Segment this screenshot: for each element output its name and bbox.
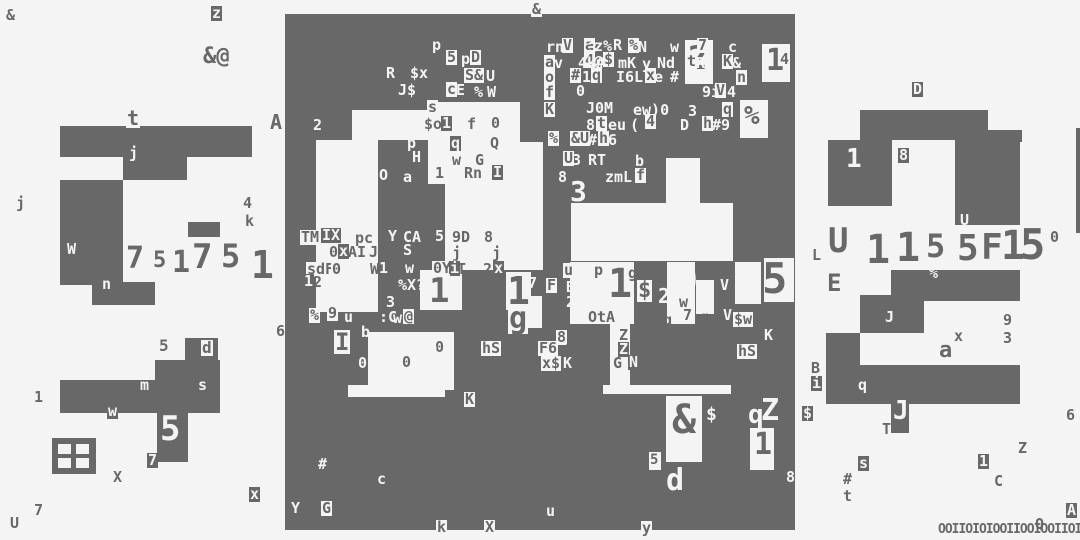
glyph: g [508,304,528,334]
glyph: C [994,474,1003,489]
glyph: 4 [727,85,736,100]
glyph: $ [706,406,717,424]
glyph: & [473,68,484,83]
glyph: a [532,154,541,169]
glyph: 1 [978,454,989,469]
glyph: T [882,422,891,437]
glyph: 1 [896,228,920,268]
glyph: 5 [925,230,946,262]
glyph: Lg [654,313,672,328]
glyph: 6 [608,133,617,148]
glyph: 8 [898,148,909,163]
glyph: s [198,378,207,393]
glyph: W [487,85,496,100]
glyph: o [891,346,900,361]
glyph: j [16,196,25,211]
glyph: V [722,308,733,323]
glyph: I [492,165,503,180]
glyph: 7 [683,308,692,323]
glyph: S [402,243,413,258]
glyph: 8 [786,470,795,485]
glyph: 9 [1003,313,1012,328]
glyph: @ [403,309,414,324]
glyph: q [450,136,461,151]
glyph: hS [481,341,501,356]
glyph: N [628,355,639,370]
glyph: 2 [378,356,387,371]
glyph: k [366,279,375,294]
glyph: q [700,310,709,325]
glyph: % [309,308,320,323]
glyph: z [211,6,222,21]
glyph: % [426,355,435,370]
light-block [58,458,71,468]
glyph: K [764,328,773,343]
glyph: e [60,441,69,456]
light-block [603,385,731,394]
glyph: w [452,153,461,168]
glyph: V [720,278,729,293]
glyph: D [680,118,689,133]
glyph: X [484,520,495,535]
glyph: Y [291,501,300,516]
glyph: 5 [158,338,170,354]
glyph: 0 [1050,230,1059,245]
glyph: 7 [34,503,43,518]
glyph: Z [761,396,779,426]
glyph: y [641,521,652,536]
glyph: x [493,261,504,276]
glyph: 5 [152,250,167,272]
glyph: d [666,466,684,496]
glyph: k [436,520,447,535]
glyph: 1 [96,244,118,280]
glyph: w [404,261,415,276]
glyph: 5 [650,453,658,467]
glyph: D [912,82,923,97]
glyph: 5 [1020,224,1045,266]
glyph: 1 [608,264,632,304]
glyph: 2 [313,118,322,133]
glyph: x$ [541,356,561,371]
glyph: 4 [780,52,789,67]
glyph: G [613,356,622,371]
glyph: %X? [398,278,425,293]
glyph: 0 [401,355,412,370]
glyph: #9 [712,118,730,133]
dark-block [826,365,1020,404]
glyph: 6 [1066,408,1075,423]
glyph: v [554,56,563,71]
glyph: F8 [572,356,590,371]
glyph: 1 [846,146,862,172]
glyph: 0 [329,245,338,260]
glyph: c [377,472,386,487]
glyph: F [981,230,1003,266]
glyph: # [843,472,852,487]
glyph: j [129,146,138,161]
glyph: & [6,8,15,23]
glyph: 1 [435,166,444,181]
glyph: J4 [369,245,387,260]
glyph: e [654,70,663,85]
glyph: $ [802,406,813,421]
glyph: IX [321,228,341,243]
glyph: b [361,325,370,340]
glyph: L [812,248,821,263]
glyph: $ [637,280,652,302]
glyph: q [858,378,867,393]
glyph: U [828,224,848,258]
glyph: 4 [243,196,252,211]
glyph: 1 [34,390,43,405]
glyph: t [843,489,852,504]
glyph: 7 [147,453,158,468]
glyph: x [249,487,260,502]
glyph: 4 [645,114,656,129]
glyph: % [744,103,760,129]
glyph: 9 [408,373,417,388]
glyph: q [591,68,602,83]
glyph: U [486,69,495,84]
glyph: 3 [688,104,697,119]
glyph: Q [490,136,499,151]
glyph: 6 [276,324,285,339]
glyph: T [457,262,466,277]
glyph: x [954,329,963,344]
glyph: G [321,501,332,516]
glyph: f [466,117,477,132]
glyph: w [393,311,402,326]
glyph: 3 [572,153,581,168]
glyph: E [456,83,465,98]
glyph: 0 [358,356,367,371]
glyph: u [546,504,555,519]
glyph: s [858,456,869,471]
glyph: a [403,170,412,185]
glyph: Rn [464,166,482,181]
glyph: 2 [483,262,492,277]
glyph: q [722,102,733,117]
glyph: X [113,470,122,485]
glyph: 3 [1003,331,1012,346]
glyph: k [245,214,254,229]
light-block [666,158,700,206]
glyph: 7 [697,38,708,53]
glyph: 5 [957,231,979,267]
glyph: N [638,40,647,55]
glyph: 5 [435,229,444,244]
glyph: 2 [293,275,302,290]
glyph: p [461,52,470,67]
light-block [348,385,445,397]
glyph: A [1066,503,1077,518]
glyph: s [427,100,438,115]
glyph: & [531,2,542,17]
glyph: d [201,340,213,356]
glyph: TM [300,230,320,245]
glyph: # [318,457,327,472]
glyph: H [412,150,421,165]
glyph: K [464,392,475,407]
glyph: 1 [251,246,274,284]
glyph: 5 [698,282,711,304]
glyph: 2 [566,295,575,310]
glyph: 9D [452,230,470,245]
glyph: I6L [616,70,643,85]
glyph: V [715,83,726,98]
glyph: n [736,70,747,85]
glyph: E [826,271,842,295]
glyph: OOIIOIOIOOIIOOIOOIIOIIOOIIOOIO [938,523,1080,536]
glyph: t [126,108,140,128]
glyph: $x [410,66,428,81]
glyph: 0 [490,116,501,131]
glyph: u [563,263,574,278]
glyph: 7 [126,244,144,274]
glyph: 9 [327,306,338,321]
glyph: 5 [160,412,180,446]
glyph: 0 [331,262,342,277]
glyph: 5 [762,258,787,300]
glyph: u [344,310,353,325]
glyph: % [474,85,483,100]
light-block [571,203,733,261]
glyph: 3 [570,178,587,206]
glyph: Y [388,229,397,244]
glyph: OtA [588,310,615,325]
glyph: m [140,378,149,393]
glyph: J [885,310,894,325]
glyph: D [470,50,481,65]
glyph: K [544,102,555,117]
glyph: U [10,516,19,531]
glyph: W [66,242,77,257]
glyph: Z [1018,441,1027,456]
glyph: J [893,398,909,424]
glyph: R [613,38,622,53]
glyph: I [334,330,350,354]
glyph: 1 [441,116,452,131]
dark-block [155,360,220,413]
glyph: ( [630,118,639,133]
glyph: AI [348,245,366,260]
glyph: % [929,266,938,281]
light-block [76,458,89,468]
glyph: 1 [738,264,762,304]
glyph: 1 [866,230,890,270]
dark-block [860,110,988,140]
light-block [76,444,89,454]
glyph: zmL [605,170,632,185]
glyph: 5 [446,50,457,65]
glyph: f [544,85,555,100]
glyph: & [672,400,696,440]
glyph: RT [588,153,606,168]
glyph: w [107,404,118,419]
glyph: $w [733,312,753,327]
glyph: hS [737,344,757,359]
glyph: p [432,38,441,53]
glyph: J$ [398,83,416,98]
glyph: 5 [220,240,241,272]
dark-block [60,126,252,157]
glyph: O [379,168,388,183]
glyph: 7 [192,240,212,274]
glyph: i [811,376,822,391]
glyph: 2 [313,275,322,290]
glyph: A [270,112,282,132]
glyph: E [481,118,490,133]
glyph: 8 [558,170,567,185]
glyph: 1 [754,430,772,460]
glyph: 0 [576,84,585,99]
glyph: F [546,278,557,293]
glyph: V [562,38,573,53]
glyph: R [386,66,395,81]
glyph: % [548,131,559,146]
glyph: w [670,40,679,55]
glyph: 1 [428,274,450,308]
glyph: R [696,56,705,71]
glyph: # [570,68,581,83]
glyph: f [635,168,646,183]
glyph: 8 [484,230,493,245]
glyph: 1 [172,248,190,278]
glyph: U [960,213,969,228]
glyph: &@ [203,46,230,68]
dark-block [188,222,220,237]
glyph: a [938,340,953,362]
glitch-art-canvas: &z&@tjAj4kWn175175165dms1we57Xx7U&p5pDaz… [0,0,1080,540]
glyph: # [670,70,679,85]
dark-block [1076,128,1080,233]
glyph: p [666,293,675,308]
